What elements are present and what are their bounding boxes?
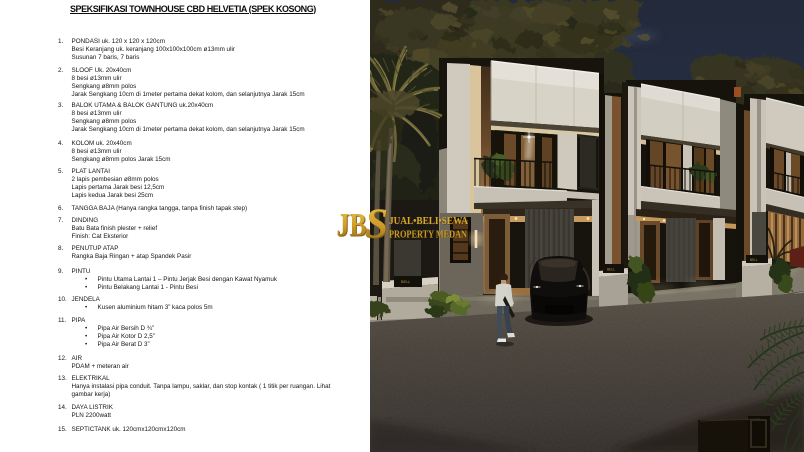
svg-text:JB: JB xyxy=(337,208,367,244)
svg-text:JUAL•BELI•SEWA: JUAL•BELI•SEWA xyxy=(389,216,469,227)
svg-text:S: S xyxy=(365,202,388,248)
svg-text:BELL: BELL xyxy=(607,268,615,272)
svg-text:BELL: BELL xyxy=(401,280,410,284)
svg-text:PROPERTY MEDAN: PROPERTY MEDAN xyxy=(389,230,468,241)
svg-text:BELL: BELL xyxy=(750,258,758,262)
